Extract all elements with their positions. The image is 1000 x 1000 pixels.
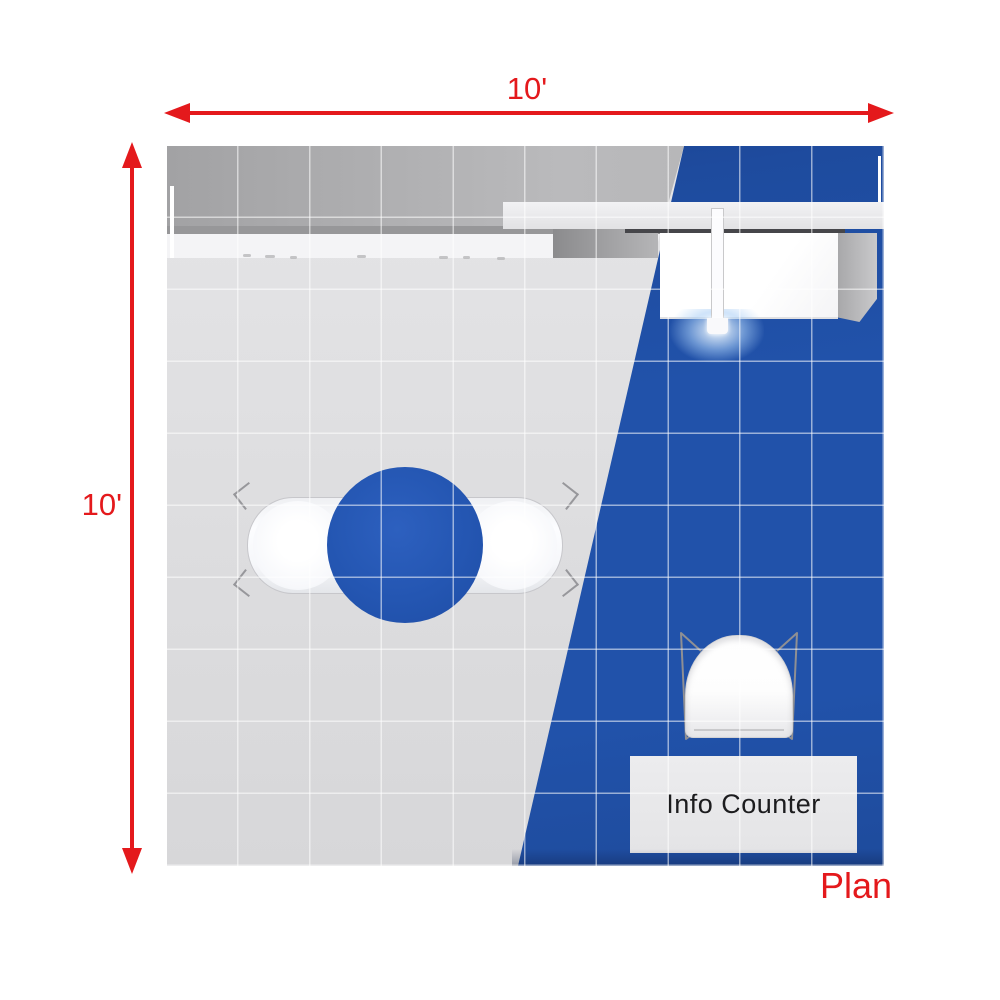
round-table <box>327 467 483 623</box>
arrow-left-icon <box>164 103 190 123</box>
floor-mark <box>463 256 470 259</box>
plan-caption: Plan <box>806 868 906 904</box>
arrow-down-icon <box>122 848 142 874</box>
floor-mark <box>439 256 448 259</box>
booth-floor-plan: Info Counter <box>167 146 884 866</box>
right-wall-highlight <box>878 156 881 204</box>
left-dimension-arrow-line <box>130 164 134 848</box>
shelf-shadow-box <box>553 229 658 258</box>
left-dimension-label: 10' <box>52 489 122 522</box>
monitor-mount-base <box>707 318 728 334</box>
carpet-edge-shadow <box>512 849 884 866</box>
top-dimension-label: 10' <box>477 73 577 106</box>
top-dimension-arrow-line <box>186 111 870 115</box>
left-wall-highlight <box>170 186 174 258</box>
back-wall-shelf <box>503 202 884 229</box>
info-counter: Info Counter <box>630 756 857 853</box>
monitor-mount <box>711 208 724 320</box>
floor-mark <box>243 254 251 257</box>
floor-mark <box>357 255 366 258</box>
floor-mark <box>497 257 505 260</box>
reception-counter <box>660 233 838 319</box>
info-counter-label: Info Counter <box>666 789 821 820</box>
floor-mark <box>265 255 275 258</box>
arrow-up-icon <box>122 142 142 168</box>
arrow-right-icon <box>868 103 894 123</box>
floor-mark <box>290 256 297 259</box>
